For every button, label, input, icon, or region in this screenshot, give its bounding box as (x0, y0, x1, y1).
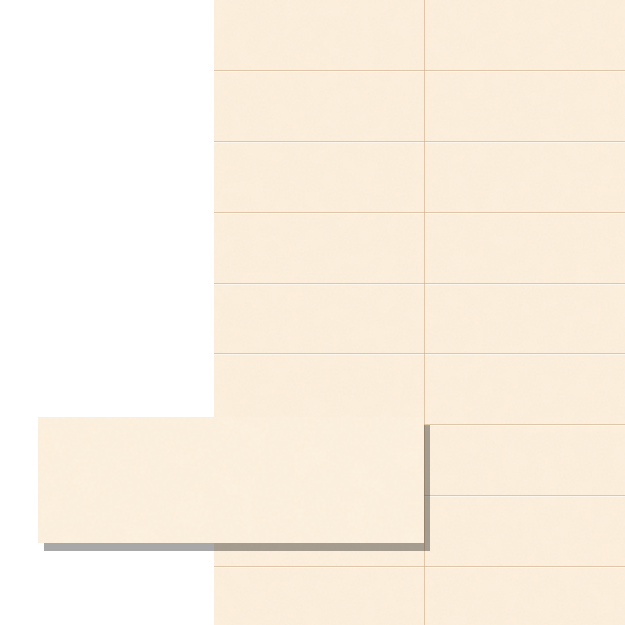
tile-sample-face (38, 417, 424, 543)
tile-sample-swatch[interactable] (38, 417, 424, 543)
tile-catalog-image (0, 0, 625, 625)
tile-sample-texture (38, 417, 424, 543)
